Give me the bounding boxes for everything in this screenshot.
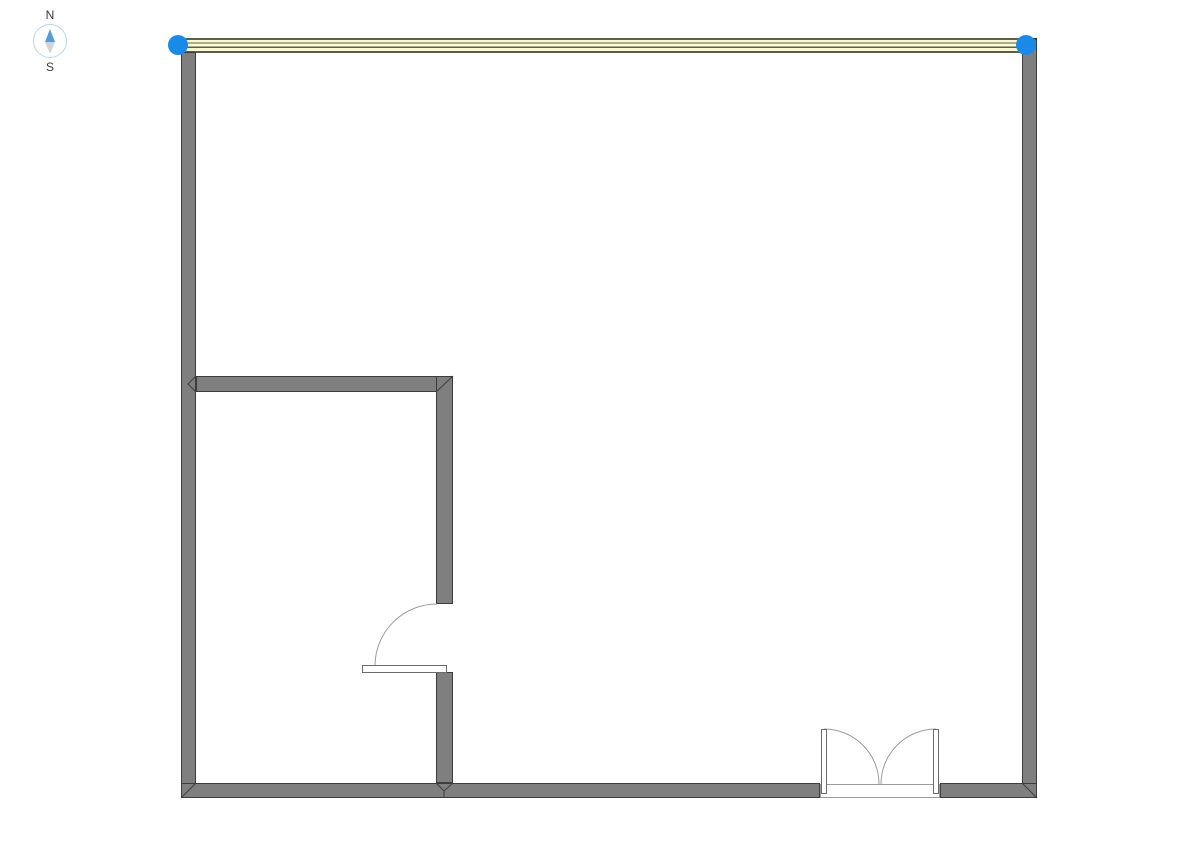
- floorplan-canvas: N S: [0, 0, 1190, 841]
- door-swing-arc: [824, 729, 879, 784]
- south-wall-east-segment[interactable]: [941, 784, 1037, 798]
- compass-south-label: S: [46, 60, 54, 74]
- door-leaf[interactable]: [934, 730, 939, 794]
- compass-needle-north-icon: [45, 29, 55, 42]
- door-leaf[interactable]: [363, 666, 447, 673]
- door-leaf[interactable]: [822, 730, 827, 794]
- door-threshold: [821, 785, 940, 798]
- compass: N S: [30, 8, 70, 74]
- wall-stripe-base: [179, 38, 1037, 53]
- interior-single-door[interactable]: [363, 604, 447, 673]
- exterior-double-door[interactable]: [821, 729, 940, 798]
- selection-handle-east-endpoint[interactable]: [1016, 35, 1036, 55]
- compass-north-label: N: [46, 8, 55, 22]
- north-wall-selected[interactable]: [179, 38, 1037, 53]
- wall-stripe: [179, 47, 1037, 48]
- wall-stripe: [179, 51, 1037, 53]
- south-wall-west-segment[interactable]: [182, 784, 820, 798]
- selection-handle-west-endpoint[interactable]: [168, 35, 188, 55]
- compass-rose-icon: [33, 24, 67, 58]
- compass-needle-south-icon: [45, 42, 55, 54]
- door-swing-arc: [375, 604, 437, 665]
- interior-wall-vertical-upper[interactable]: [437, 377, 453, 604]
- door-swing-arc: [881, 729, 936, 784]
- interior-wall-horizontal[interactable]: [197, 377, 453, 392]
- wall-stripe: [179, 42, 1037, 43]
- interior-wall-vertical-lower[interactable]: [437, 673, 453, 783]
- east-wall[interactable]: [1023, 39, 1037, 798]
- wall-stripe: [179, 38, 1037, 40]
- west-wall[interactable]: [182, 53, 196, 798]
- floorplan-drawing: [0, 0, 1190, 841]
